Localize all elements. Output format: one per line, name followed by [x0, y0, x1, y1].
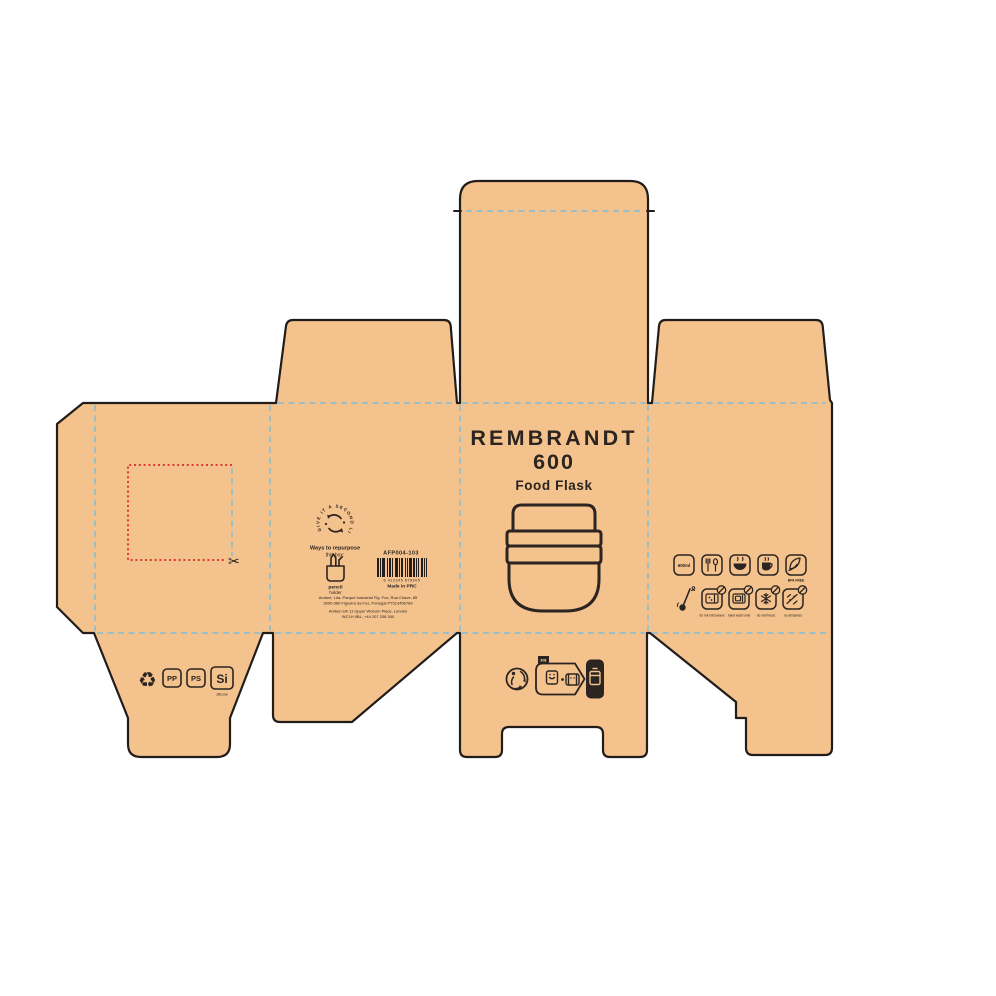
address-line-2: 3090-380 Figueira da Foz, Portugal PT513…: [323, 601, 413, 606]
dieline-outline: [57, 181, 832, 757]
freezer-caption: do not freeze: [757, 614, 776, 618]
address-line-3: Amberi UK 11 Upper Woburn Place, London: [329, 609, 407, 614]
recycle-mobius-icon: ♻: [138, 669, 157, 692]
recycle-bin-block: [586, 660, 604, 699]
product-model: 600: [533, 450, 575, 474]
abrasives-caption: no abrasives: [784, 614, 802, 618]
scissors-icon: ✂: [228, 553, 240, 569]
sku-code: AFP004-103: [383, 551, 419, 557]
dieline-canvas: ✂ REMBRANDT 600 Food Flask GIVE IT A SEC…: [0, 0, 996, 996]
microwave-caption: do not microwave: [700, 614, 725, 618]
product-subtitle: Food Flask: [515, 478, 592, 493]
no-badge-icon: [771, 586, 779, 594]
address-line-1: Amberi, Lda. Parque Industrial Fig. Foz,…: [319, 595, 418, 600]
packaging-dieline: ✂ REMBRANDT 600 Food Flask GIVE IT A SEC…: [0, 0, 996, 996]
address-line-4: WC1H 0BL, +44 207 208 300: [342, 614, 395, 619]
no-badge-icon: [717, 586, 725, 594]
plus-dot-icon: [561, 678, 564, 681]
dishwasher-caption: hand wash only: [728, 614, 751, 618]
ps-label: PS: [191, 674, 201, 683]
pp-label: PP: [167, 674, 177, 683]
capacity-label: 600ml: [678, 563, 690, 568]
si-label: Si: [216, 672, 227, 686]
made-in: Made in PRC: [387, 584, 417, 590]
no-badge-icon: [744, 586, 752, 594]
barcode-digits: 8 412345 678905: [384, 579, 421, 583]
no-badge-icon: [798, 586, 806, 594]
product-title: REMBRANDT: [470, 426, 637, 450]
repurpose-heading: Ways to repurpose: [310, 546, 360, 552]
sorting-tab-label: FR: [540, 658, 547, 663]
si-caption: silicone: [216, 693, 227, 697]
bpa-free-caption: BPA FREE: [788, 579, 805, 583]
